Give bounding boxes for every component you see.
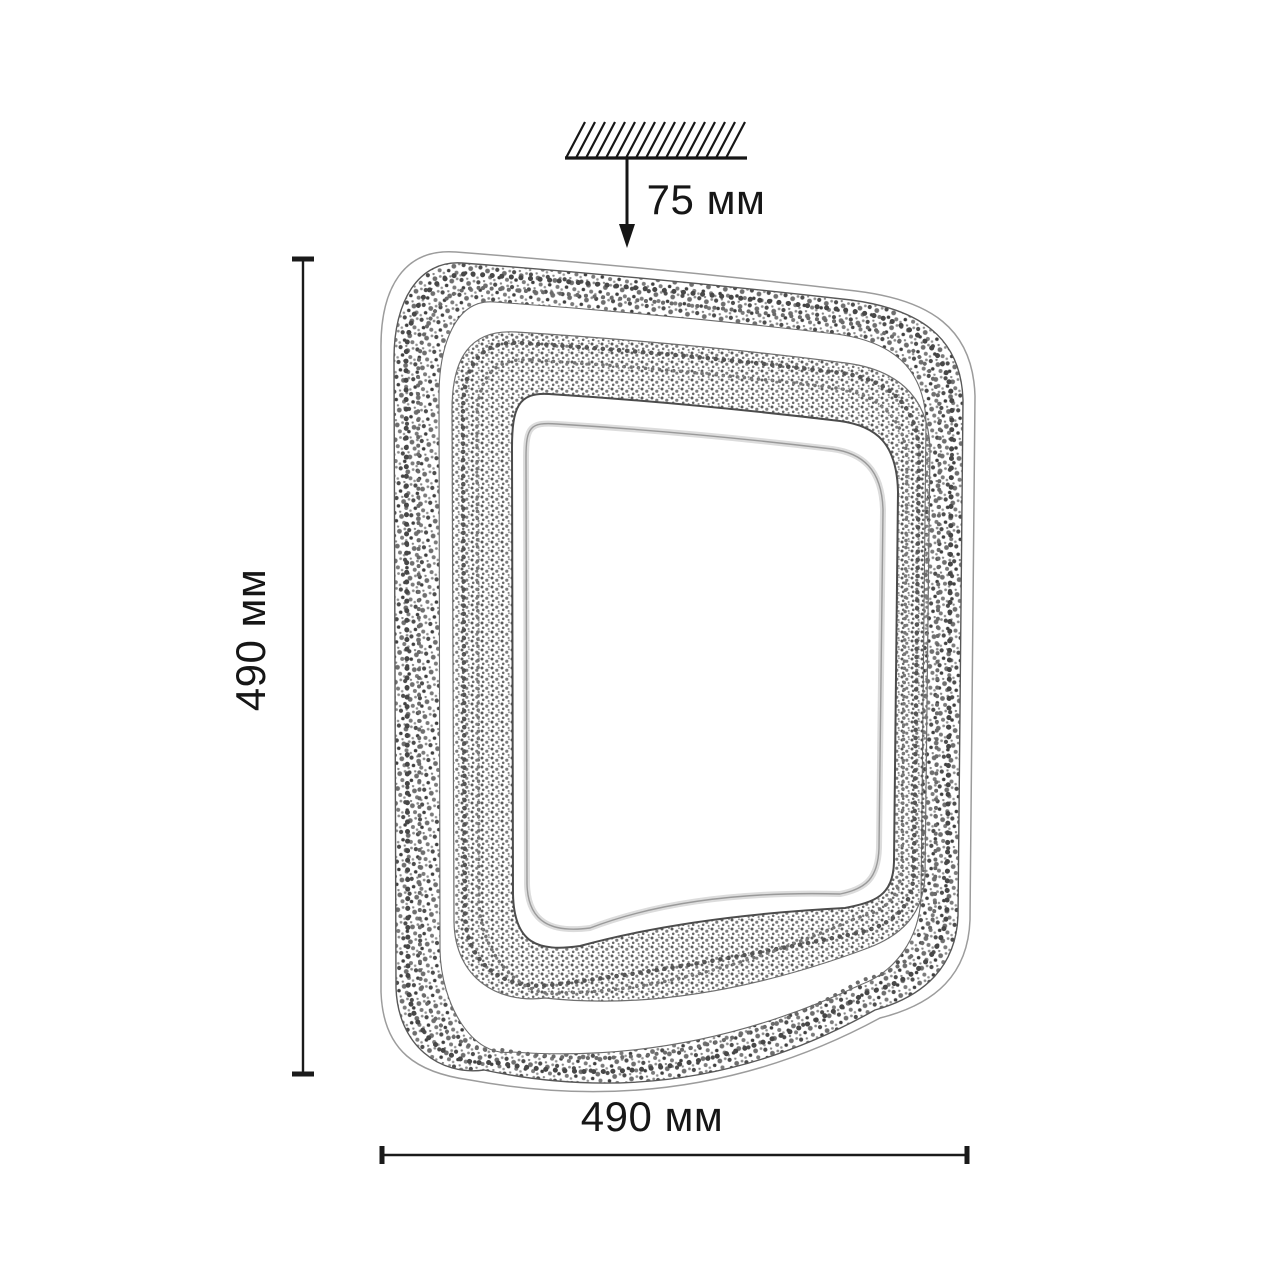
offset-dimension-label: 75 мм xyxy=(647,179,766,221)
diagram-canvas: 75 мм 490 мм 490 мм xyxy=(0,0,1280,1280)
lamp-center-panel xyxy=(512,394,898,948)
width-dimension xyxy=(382,1146,967,1164)
ceiling-symbol xyxy=(565,122,747,158)
height-dimension xyxy=(292,259,314,1074)
lamp-drawing xyxy=(381,252,975,1092)
height-dimension-label: 490 мм xyxy=(230,569,272,712)
offset-arrowhead xyxy=(619,224,635,248)
ceiling-hatch-lines xyxy=(566,122,745,158)
offset-arrow xyxy=(619,158,635,248)
width-dimension-label: 490 мм xyxy=(581,1096,724,1138)
lamp-dimension-drawing xyxy=(0,0,1280,1280)
